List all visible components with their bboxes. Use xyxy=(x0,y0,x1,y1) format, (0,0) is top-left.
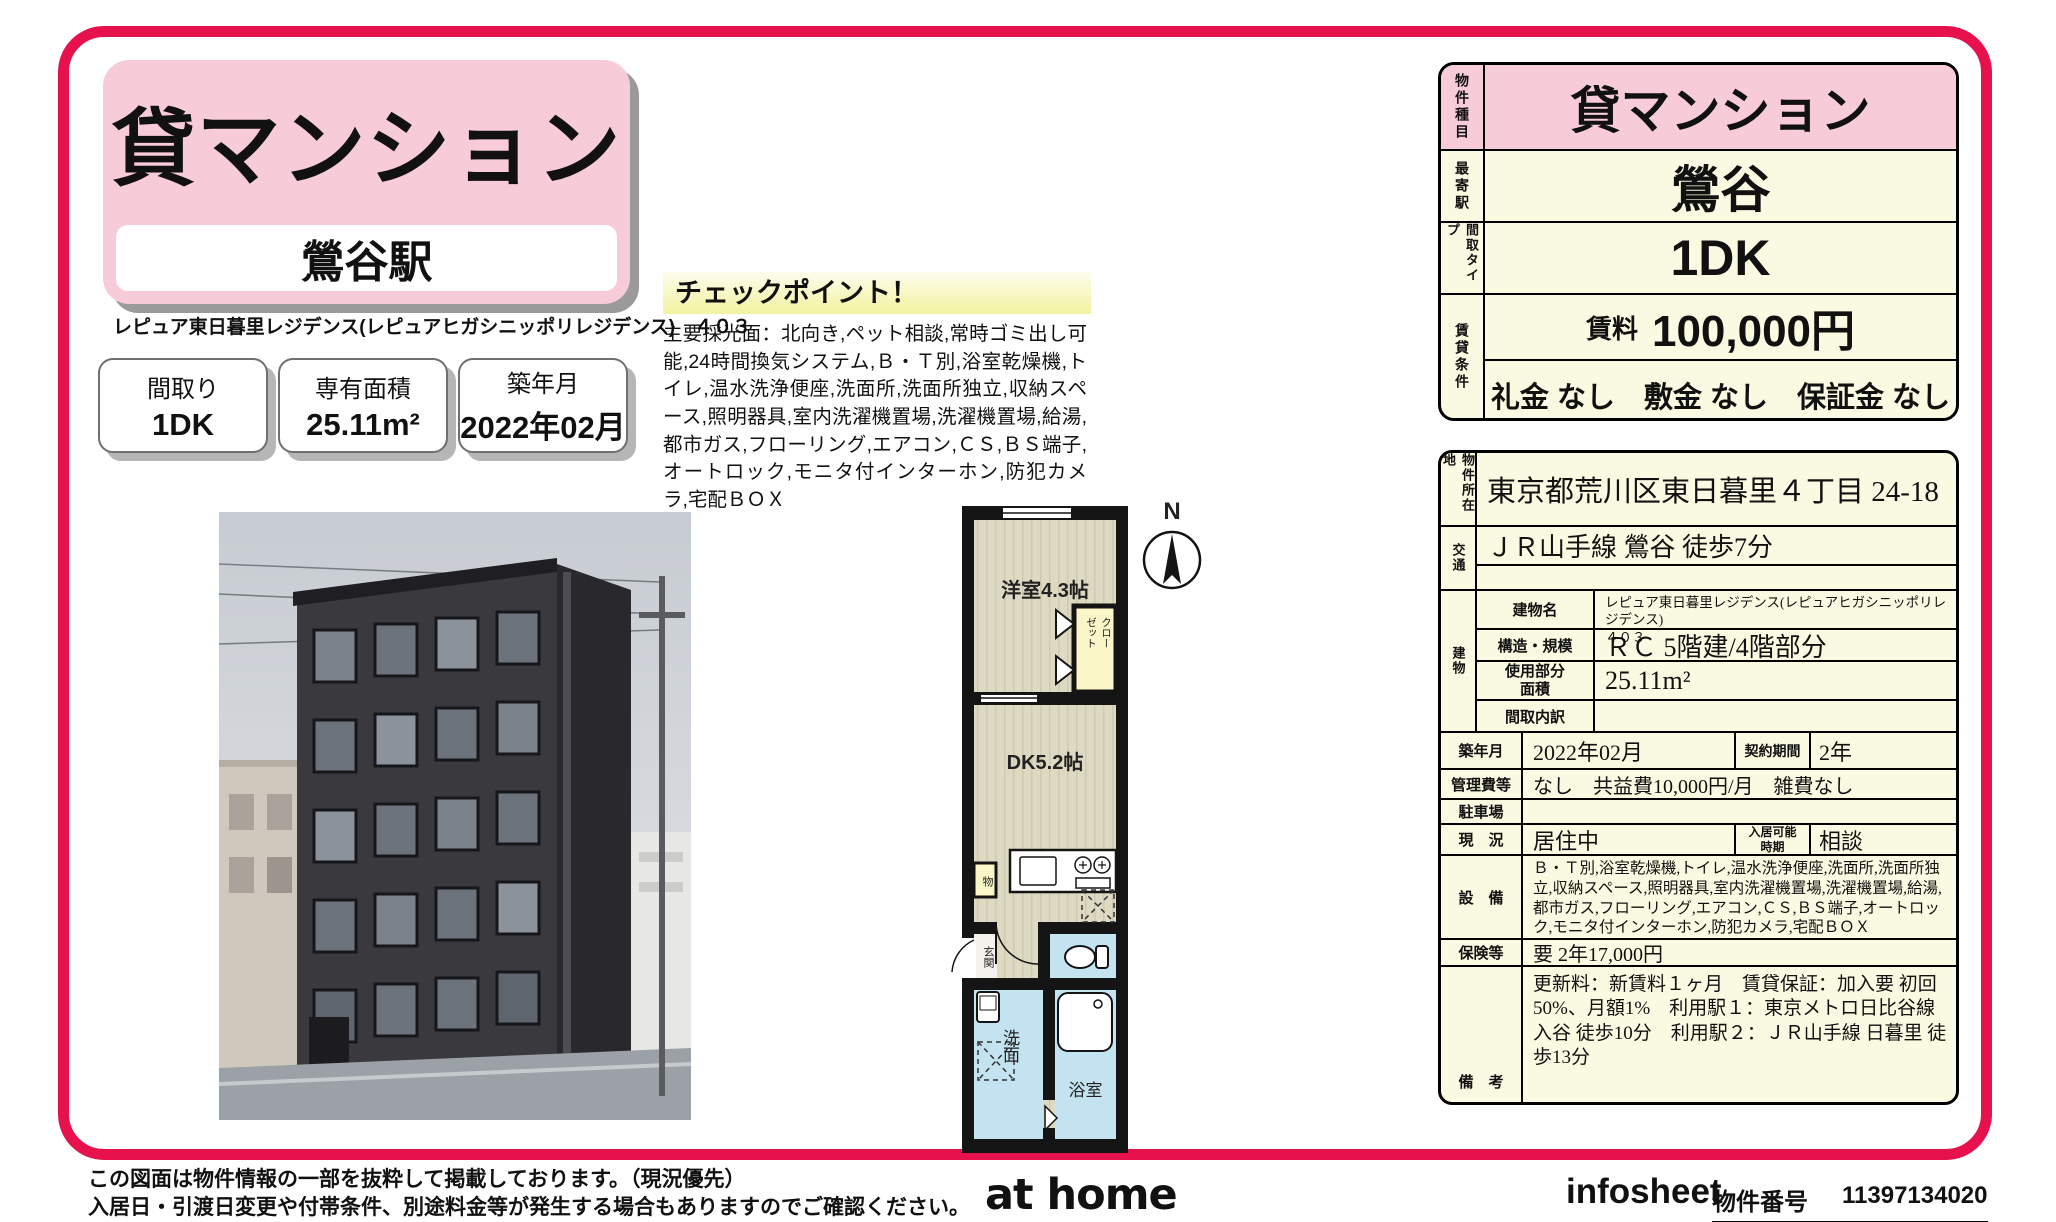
table-row: 現 況 居住中 入居可能時期 相談 xyxy=(1441,823,1956,854)
row-label: 構造・規模 xyxy=(1477,630,1595,660)
property-type-title: 貸マンション xyxy=(103,82,630,203)
rent-value: 100,000円 xyxy=(1652,295,1855,359)
table-row: 駐車場 xyxy=(1441,798,1956,823)
row-label: 賃貸条件 xyxy=(1441,295,1485,418)
insurance-value: 要 2年17,000円 xyxy=(1523,940,1956,965)
spec-value: 2022年02月 xyxy=(460,402,625,447)
row-label: 契約期間 xyxy=(1734,733,1811,768)
row-label: 設 備 xyxy=(1441,856,1523,938)
property-type-banner: 貸マンション 鶯谷駅 xyxy=(103,60,630,304)
table-row: 使用部分面積 25.11m² xyxy=(1477,660,1956,699)
spec-box-built: 築年月 2022年02月 xyxy=(458,358,628,453)
row-label: 物件所在地 xyxy=(1441,453,1477,525)
footer-disclaimer: この図面は物件情報の一部を抜粋して掲載しております。（現況優先） 入居日・引渡日… xyxy=(88,1166,970,1222)
table-row: 備 考 更新料：新賃料１ヶ月 賃貸保証：加入要 初回50%、月額1% 利用駅１：… xyxy=(1441,965,1956,1102)
row-label: 駐車場 xyxy=(1441,800,1523,823)
location-value: 東京都荒川区東日暮里４丁目 24-18 xyxy=(1477,453,1956,525)
mgmt-value: なし 共益費10,000円/月 雑費なし xyxy=(1523,770,1956,798)
area-value: 25.11m² xyxy=(1595,662,1956,699)
building-photo xyxy=(219,512,691,1120)
athome-logo: at home xyxy=(985,1170,1177,1220)
layout-type-value: 1DK xyxy=(1485,223,1956,293)
structure-value: ＲＣ 5階建/4階部分 xyxy=(1595,630,1956,660)
row-label: 保険等 xyxy=(1441,940,1523,965)
building-name-value: レピュア東日暮里レジデンス(レピュアヒガシニッポリレジデンス) ４０３ xyxy=(1595,591,1956,628)
notes-value: 更新料：新賃料１ヶ月 賃貸保証：加入要 初回50%、月額1% 利用駅１：東京メト… xyxy=(1523,967,1956,1102)
row-label: 入居可能時期 xyxy=(1734,825,1811,854)
infosheet-label: infosheet xyxy=(1566,1172,1722,1212)
rent-row: 賃料 100,000円 xyxy=(1485,295,1956,361)
checkpoint-body: 主要採光面：北向き,ペット相談,常時ゴミ出し可能,24時間換気システム,Ｂ・Ｔ別… xyxy=(663,321,1087,515)
floorplan: N 洋室4.3帖 クローゼット DK5.2帖 物 玄関 洗面 浴室 xyxy=(950,498,1280,1158)
spec-value: 25.11m² xyxy=(306,407,420,443)
table-row: 間取内訳 xyxy=(1477,699,1956,731)
table-row: 最寄駅 鶯谷 xyxy=(1441,149,1956,221)
infosheet-page: 貸マンション 鶯谷駅 レピュア東日暮里レジデンス(レピュアヒガシニッポリレジデン… xyxy=(0,0,2056,1222)
row-label: 築年月 xyxy=(1441,733,1523,768)
disclaimer-line-2: 入居日・引渡日変更や付帯条件、別途料金等が発生する場合もありますのでご確認くださ… xyxy=(88,1194,970,1222)
row-label: 備 考 xyxy=(1441,967,1523,1102)
spec-label: 専有面積 xyxy=(315,369,411,404)
table-row: 築年月 2022年02月 契約期間 2年 xyxy=(1441,731,1956,768)
table-row: 建物 建物名 レピュア東日暮里レジデンス(レピュアヒガシニッポリレジデンス) ４… xyxy=(1441,589,1956,731)
checkpoint-title: チェックポイント！ xyxy=(663,272,1091,314)
property-number-label: 物件番号 xyxy=(1712,1182,1808,1217)
room-label-entrance: 玄関 xyxy=(978,936,996,978)
row-label: 建物名 xyxy=(1477,591,1595,628)
status-value: 居住中 xyxy=(1523,825,1734,854)
room-label-dk: DK5.2帖 xyxy=(974,746,1116,775)
table-row: 管理費等 なし 共益費10,000円/月 雑費なし xyxy=(1441,768,1956,798)
room-label-bathroom: 浴室 xyxy=(1055,1076,1116,1101)
property-number-value: 11397134020 xyxy=(1842,1182,1988,1217)
parking-value xyxy=(1523,800,1956,823)
table-row: 保険等 要 2年17,000円 xyxy=(1441,938,1956,965)
detail-table: 物件所在地 東京都荒川区東日暮里４丁目 24-18 交通 ＪＲ山手線 鶯谷 徒歩… xyxy=(1438,450,1959,1105)
spec-label: 築年月 xyxy=(507,364,579,399)
room-label-closet: クローゼット xyxy=(1079,613,1113,653)
table-row: 交通 ＪＲ山手線 鶯谷 徒歩7分 xyxy=(1441,525,1956,589)
table-row: 建物名 レピュア東日暮里レジデンス(レピュアヒガシニッポリレジデンス) ４０３ xyxy=(1477,591,1956,628)
building-photo-drawing xyxy=(219,512,691,1120)
property-type-value: 貸マンション xyxy=(1485,65,1956,149)
row-label: 使用部分面積 xyxy=(1477,662,1595,699)
table-row: 物件所在地 東京都荒川区東日暮里４丁目 24-18 xyxy=(1441,453,1956,525)
station-title: 鶯谷駅 xyxy=(116,225,617,291)
row-label: 管理費等 xyxy=(1441,770,1523,798)
table-row: 間取タイプ 1DK xyxy=(1441,221,1956,293)
table-row: 設 備 Ｂ・Ｔ別,浴室乾燥機,トイレ,温水洗浄便座,洗面所,洗面所独立,収納スペ… xyxy=(1441,854,1956,938)
spec-value: 1DK xyxy=(152,407,214,443)
built-value: 2022年02月 xyxy=(1523,733,1734,768)
property-name: レピュア東日暮里レジデンス(レピュアヒガシニッポリレジデンス) ４０３ xyxy=(113,312,751,339)
row-label: 最寄駅 xyxy=(1441,151,1485,221)
row-label: 間取内訳 xyxy=(1477,701,1595,731)
nearest-station-value: 鶯谷 xyxy=(1485,151,1956,221)
row-label: 建物 xyxy=(1441,591,1477,731)
contract-value: 2年 xyxy=(1811,733,1956,768)
room-label-washroom: 洗面 xyxy=(1000,1013,1022,1079)
table-row: 物件種目 貸マンション xyxy=(1441,65,1956,149)
summary-table: 物件種目 貸マンション 最寄駅 鶯谷 間取タイプ 1DK 賃貸条件 賃料 100… xyxy=(1438,62,1959,421)
fees-value: 礼金 なし 敷金 なし 保証金 なし xyxy=(1485,361,1956,421)
movein-value: 相談 xyxy=(1811,825,1956,854)
spec-label: 間取り xyxy=(147,369,219,404)
row-label: 現 況 xyxy=(1441,825,1523,854)
layout-detail-value xyxy=(1595,701,1956,731)
spec-box-area: 専有面積 25.11m² xyxy=(278,358,448,453)
compass-n-label: N xyxy=(1157,498,1187,526)
rent-label: 賃料 xyxy=(1586,309,1638,346)
row-label: 間取タイプ xyxy=(1441,223,1485,293)
table-row: 構造・規模 ＲＣ 5階建/4階部分 xyxy=(1477,628,1956,660)
disclaimer-line-1: この図面は物件情報の一部を抜粋して掲載しております。（現況優先） xyxy=(88,1166,970,1194)
row-label: 交通 xyxy=(1441,527,1477,589)
room-label-western: 洋室4.3帖 xyxy=(974,574,1116,603)
spec-box-layout: 間取り 1DK xyxy=(98,358,268,453)
equipment-value: Ｂ・Ｔ別,浴室乾燥機,トイレ,温水洗浄便座,洗面所,洗面所独立,収納スペース,照… xyxy=(1523,856,1956,938)
access-value: ＪＲ山手線 鶯谷 徒歩7分 xyxy=(1477,527,1956,566)
row-label: 物件種目 xyxy=(1441,65,1485,149)
compass-icon xyxy=(1144,532,1200,588)
table-row: 賃貸条件 賃料 100,000円 礼金 なし 敷金 なし 保証金 なし xyxy=(1441,293,1956,418)
property-number: 物件番号 11397134020 xyxy=(1712,1182,1988,1222)
access-value-2 xyxy=(1477,566,1956,589)
room-label-storage: 物 xyxy=(977,868,995,894)
